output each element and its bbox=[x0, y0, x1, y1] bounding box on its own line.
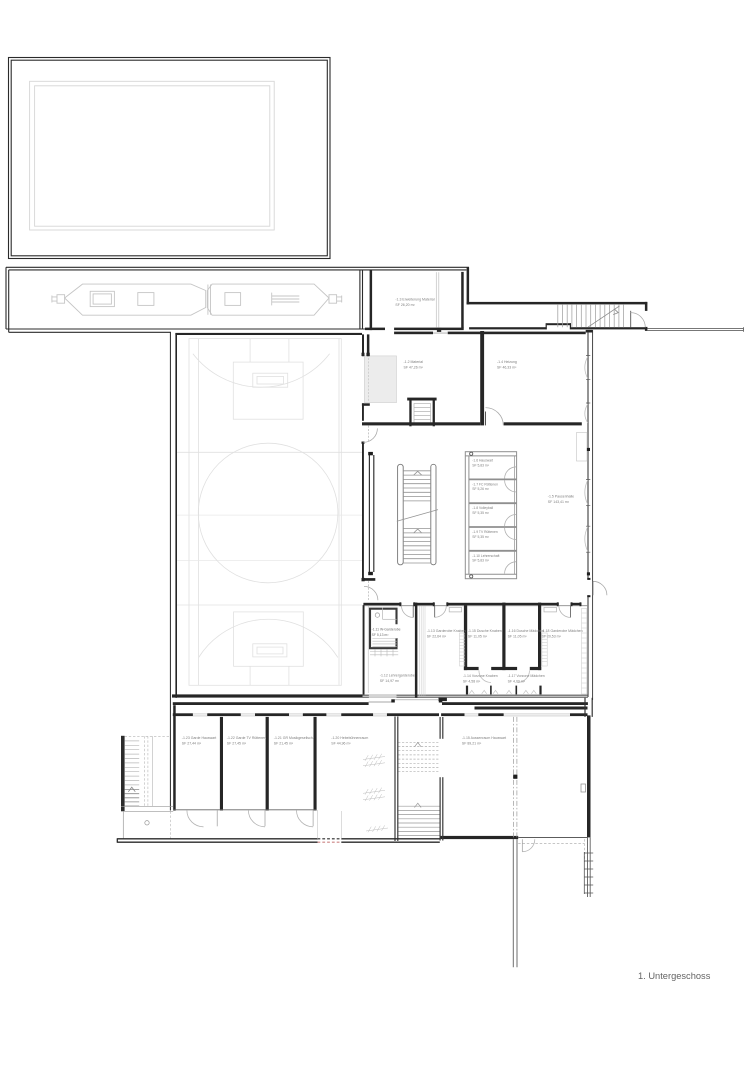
svg-text:-1.13 Garderobe Knaben: -1.13 Garderobe Knaben bbox=[427, 629, 466, 633]
svg-text:SF 46,33 m²: SF 46,33 m² bbox=[497, 365, 517, 369]
svg-text:SF 14,97 m²: SF 14,97 m² bbox=[380, 679, 400, 683]
svg-text:-1.6 Hauswart: -1.6 Hauswart bbox=[472, 459, 493, 463]
svg-text:-1.17 Vorzone Mädchen: -1.17 Vorzone Mädchen bbox=[508, 674, 545, 678]
svg-text:SF 11,05 m²: SF 11,05 m² bbox=[468, 634, 488, 638]
svg-text:-1.15 Dusche Knaben: -1.15 Dusche Knaben bbox=[468, 629, 502, 633]
svg-text:-1.22 Garde TV Rüttenen: -1.22 Garde TV Rüttenen bbox=[227, 736, 266, 740]
svg-text:-1.4 Heizung: -1.4 Heizung bbox=[497, 360, 517, 364]
svg-text:SF 20,53 m²: SF 20,53 m² bbox=[542, 634, 562, 638]
svg-text:-1.23 Garde Hauswart: -1.23 Garde Hauswart bbox=[182, 736, 216, 740]
svg-text:SF 27,45 m²: SF 27,45 m² bbox=[227, 742, 247, 746]
svg-text:SF 5,83 m²: SF 5,83 m² bbox=[472, 559, 489, 563]
svg-text:SF 21,45 m²: SF 21,45 m² bbox=[274, 742, 294, 746]
svg-text:-1.12 Lehrergarderobe: -1.12 Lehrergarderobe bbox=[380, 673, 415, 677]
svg-text:SF 5,13 m²: SF 5,13 m² bbox=[372, 633, 390, 637]
svg-text:-1.10 Lehrerschaft: -1.10 Lehrerschaft bbox=[472, 554, 499, 558]
svg-text:-1.2 Material: -1.2 Material bbox=[404, 360, 424, 364]
svg-text:-1.21 GR Musikgesellsch.: -1.21 GR Musikgesellsch. bbox=[274, 736, 314, 740]
svg-text:-1.8 Volleyball: -1.8 Volleyball bbox=[472, 506, 493, 510]
svg-text:-1.14 Vorzone Knaben: -1.14 Vorzone Knaben bbox=[463, 674, 498, 678]
svg-text:SF 22,64 m²: SF 22,64 m² bbox=[427, 634, 447, 638]
svg-text:-1.16 Dusche Mädchen: -1.16 Dusche Mädchen bbox=[508, 629, 544, 633]
svg-text:-1.3 Erweiterung Material: -1.3 Erweiterung Material bbox=[395, 298, 434, 302]
svg-text:-1.15 Aussenraum Hauswart: -1.15 Aussenraum Hauswart bbox=[462, 736, 506, 740]
svg-text:SF 4,58 m²: SF 4,58 m² bbox=[463, 680, 481, 684]
svg-text:1. Untergeschoss: 1. Untergeschoss bbox=[638, 971, 711, 981]
svg-text:SF 26,20 m²: SF 26,20 m² bbox=[395, 303, 415, 307]
svg-text:-1.20 Hebebühnenraum: -1.20 Hebebühnenraum bbox=[331, 736, 368, 740]
svg-text:SF 5,26 m²: SF 5,26 m² bbox=[472, 487, 489, 491]
svg-text:SF 27,44 m²: SF 27,44 m² bbox=[182, 742, 202, 746]
svg-text:-1.7 FC Rüttenen: -1.7 FC Rüttenen bbox=[472, 482, 498, 486]
svg-text:SF 5,83 m²: SF 5,83 m² bbox=[472, 463, 489, 467]
svg-text:SF 5,35 m²: SF 5,35 m² bbox=[472, 511, 489, 515]
svg-text:SF 44,96 m²: SF 44,96 m² bbox=[331, 742, 351, 746]
svg-text:-1.5 Pausenhalle: -1.5 Pausenhalle bbox=[548, 495, 574, 499]
svg-text:-1.11 W-Garderobe: -1.11 W-Garderobe bbox=[372, 628, 401, 632]
svg-text:SF 89,21 m²: SF 89,21 m² bbox=[462, 742, 482, 746]
svg-text:SF 47,26 m²: SF 47,26 m² bbox=[404, 365, 424, 369]
svg-text:SF 11,05 m²: SF 11,05 m² bbox=[508, 634, 528, 638]
svg-text:SF 5,35 m²: SF 5,35 m² bbox=[472, 535, 489, 539]
svg-text:-1.18 Garderobe Mädchen: -1.18 Garderobe Mädchen bbox=[542, 629, 583, 633]
svg-text:SF 4,09 m²: SF 4,09 m² bbox=[508, 680, 526, 684]
svg-text:-1.9 TV Rüttenen: -1.9 TV Rüttenen bbox=[472, 530, 498, 534]
svg-text:SF 143,41 m²: SF 143,41 m² bbox=[548, 500, 570, 504]
